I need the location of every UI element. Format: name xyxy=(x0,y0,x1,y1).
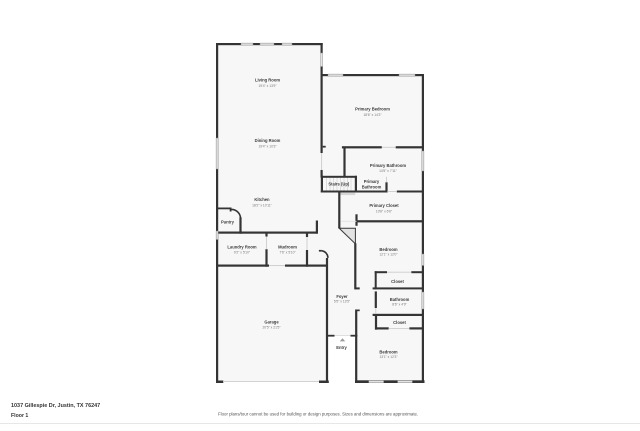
svg-text:Primary Closet: Primary Closet xyxy=(369,203,399,208)
svg-text:12'1" x 12'0": 12'1" x 12'0" xyxy=(379,253,398,257)
svg-text:Bathroom: Bathroom xyxy=(390,297,410,302)
svg-text:10'8" x 6'6": 10'8" x 6'6" xyxy=(376,210,393,214)
svg-text:Primary Bathroom: Primary Bathroom xyxy=(370,163,406,168)
svg-text:Entry: Entry xyxy=(336,345,347,350)
svg-text:Stairs (Up): Stairs (Up) xyxy=(328,182,350,187)
svg-text:5'5" x 13'5": 5'5" x 13'5" xyxy=(334,299,351,303)
svg-text:Pantry: Pantry xyxy=(221,220,235,225)
svg-text:Mudroom: Mudroom xyxy=(278,244,297,249)
svg-text:Floor plans/tour cannot be use: Floor plans/tour cannot be used for buil… xyxy=(218,412,418,417)
svg-text:9'2" x 5'10": 9'2" x 5'10" xyxy=(234,250,251,254)
svg-text:Closet: Closet xyxy=(393,320,406,325)
svg-text:14'5" x 7'11": 14'5" x 7'11" xyxy=(379,169,398,173)
svg-text:13'1" x 12'3": 13'1" x 12'3" xyxy=(379,355,398,359)
svg-text:Primary: Primary xyxy=(364,179,380,184)
svg-text:Bedroom: Bedroom xyxy=(379,247,397,252)
svg-text:19'4" x 10'3": 19'4" x 10'3" xyxy=(258,145,277,149)
svg-text:20'5" x 21'5": 20'5" x 21'5" xyxy=(262,326,281,330)
svg-text:7'6" x 5'10": 7'6" x 5'10" xyxy=(279,250,296,254)
svg-text:Garage: Garage xyxy=(264,319,279,324)
svg-text:Living Room: Living Room xyxy=(255,78,280,83)
svg-text:Kitchen: Kitchen xyxy=(254,197,270,202)
svg-text:18'6" x 14'3": 18'6" x 14'3" xyxy=(363,113,382,117)
svg-text:Laundry Room: Laundry Room xyxy=(227,244,257,249)
svg-text:1037 Gillespie Dr, Justin, TX: 1037 Gillespie Dr, Justin, TX 76247 xyxy=(11,403,100,409)
svg-text:Closet: Closet xyxy=(391,279,404,284)
svg-text:19'4" x 13'9": 19'4" x 13'9" xyxy=(258,84,277,88)
svg-text:18'2" x 10'11": 18'2" x 10'11" xyxy=(252,204,272,208)
svg-text:Dining Room: Dining Room xyxy=(255,138,281,143)
svg-text:Bathroom: Bathroom xyxy=(362,185,382,190)
svg-text:8'6" x 4'9": 8'6" x 4'9" xyxy=(392,303,407,307)
svg-text:Primary Bedroom: Primary Bedroom xyxy=(355,107,390,112)
svg-text:Floor 1: Floor 1 xyxy=(11,413,28,419)
svg-text:Bedroom: Bedroom xyxy=(379,350,397,355)
svg-text:Foyer: Foyer xyxy=(336,294,348,299)
